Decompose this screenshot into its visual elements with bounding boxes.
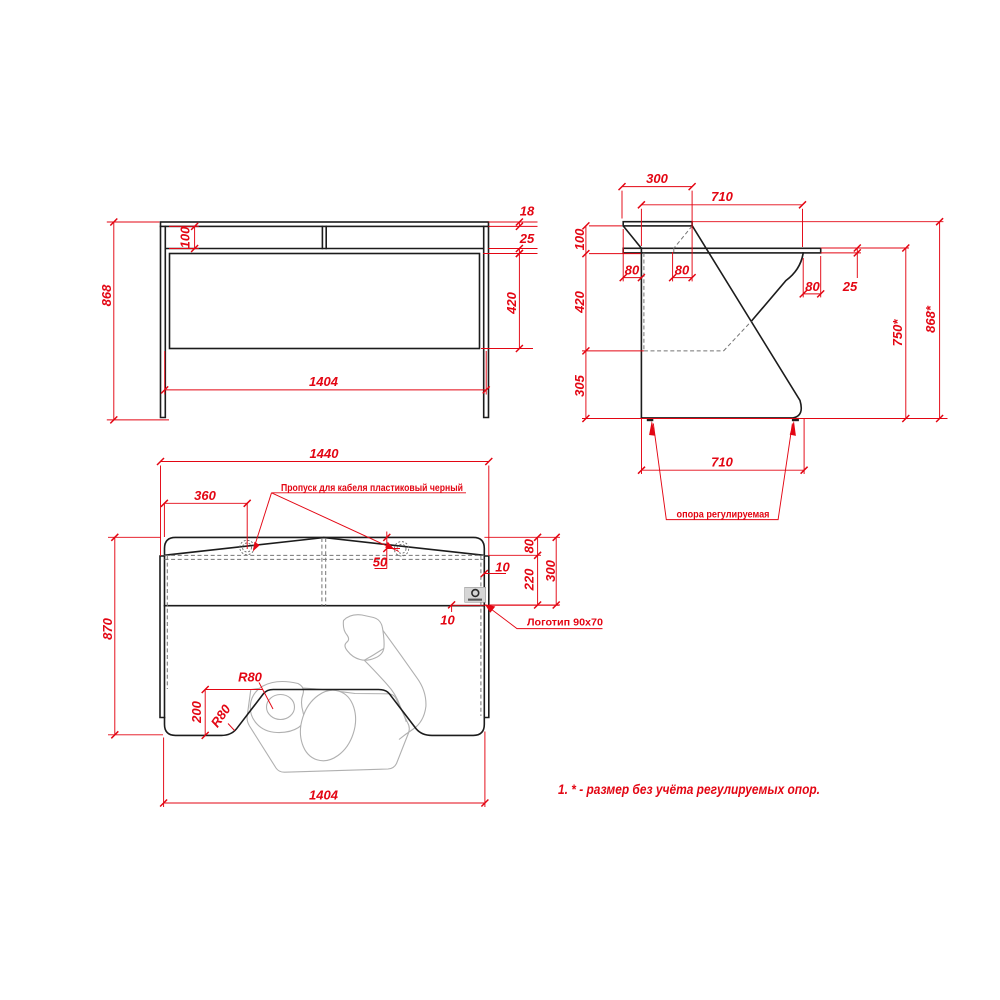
- svg-text:80: 80: [675, 263, 690, 278]
- svg-text:80: 80: [625, 263, 640, 278]
- svg-text:25: 25: [842, 279, 858, 294]
- svg-text:100: 100: [572, 228, 587, 250]
- svg-text:300: 300: [543, 559, 558, 581]
- svg-text:305: 305: [572, 374, 587, 396]
- svg-text:870: 870: [100, 617, 115, 639]
- svg-text:300: 300: [646, 171, 668, 186]
- svg-text:710: 710: [711, 189, 733, 204]
- svg-text:1404: 1404: [309, 788, 339, 803]
- svg-text:10: 10: [440, 613, 455, 628]
- svg-text:25: 25: [519, 231, 535, 246]
- svg-text:220: 220: [521, 568, 536, 591]
- svg-text:R80: R80: [238, 670, 263, 685]
- svg-text:1440: 1440: [310, 446, 340, 461]
- svg-text:50: 50: [373, 555, 388, 570]
- svg-text:1. * - размер без учёта регули: 1. * - размер без учёта регулируемых опо…: [558, 782, 820, 797]
- svg-text:Логотип 90х70: Логотип 90х70: [527, 617, 603, 629]
- svg-text:опора регулируемая: опора регулируемая: [677, 509, 770, 521]
- svg-text:750*: 750*: [890, 319, 905, 347]
- svg-text:Пропуск для кабеля пластиковый: Пропуск для кабеля пластиковый черный: [281, 482, 463, 494]
- svg-text:360: 360: [194, 488, 216, 503]
- svg-text:868: 868: [99, 284, 114, 306]
- svg-text:868*: 868*: [923, 305, 938, 333]
- svg-text:710: 710: [711, 455, 733, 470]
- svg-text:420: 420: [504, 291, 519, 314]
- svg-text:10: 10: [495, 560, 510, 575]
- svg-text:1404: 1404: [309, 374, 339, 389]
- svg-text:80: 80: [521, 538, 536, 553]
- svg-text:18: 18: [520, 204, 535, 219]
- svg-text:200: 200: [189, 700, 204, 723]
- svg-text:420: 420: [572, 290, 587, 313]
- svg-text:80: 80: [805, 279, 820, 294]
- svg-text:100: 100: [177, 226, 192, 248]
